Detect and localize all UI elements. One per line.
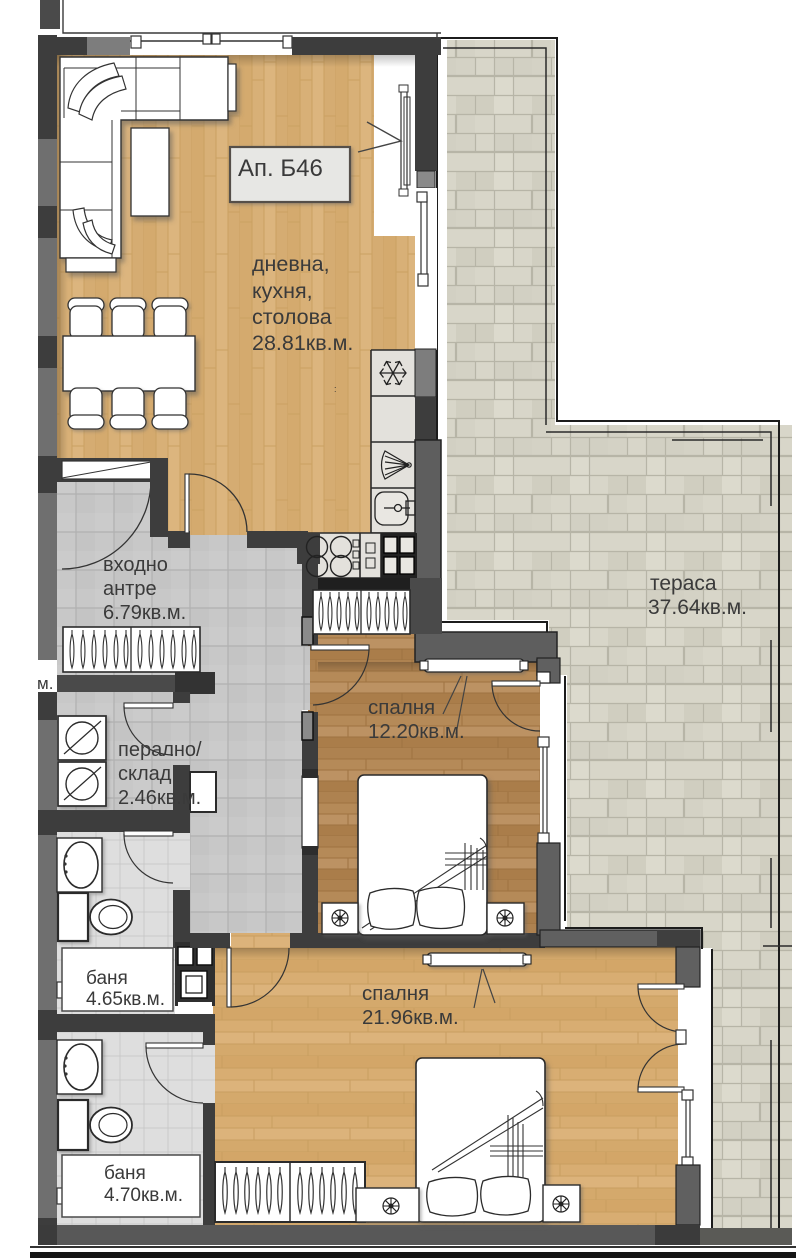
svg-text:Ап. Б46: Ап. Б46 <box>238 155 323 182</box>
svg-text:6.79кв.м.: 6.79кв.м. <box>103 602 186 624</box>
svg-text:перално/: перално/ <box>118 739 202 761</box>
svg-text:антре: антре <box>103 578 157 600</box>
svg-text:столова: столова <box>252 305 332 329</box>
svg-text:баня: баня <box>104 1163 146 1184</box>
svg-text:кухня,: кухня, <box>252 279 313 303</box>
svg-text:4.65кв.м.: 4.65кв.м. <box>86 989 165 1010</box>
svg-text::: : <box>334 384 337 394</box>
svg-text:37.64кв.м.: 37.64кв.м. <box>648 596 747 619</box>
svg-text:дневна,: дневна, <box>252 252 330 276</box>
svg-text:28.81кв.м.: 28.81кв.м. <box>252 331 353 355</box>
svg-text:баня: баня <box>86 968 128 989</box>
svg-text:входно: входно <box>103 554 168 576</box>
svg-text:12.20кв.м.: 12.20кв.м. <box>368 720 465 743</box>
svg-text:тераса: тераса <box>650 572 717 595</box>
svg-text:спалня: спалня <box>362 982 429 1005</box>
svg-text:м.: м. <box>37 674 53 693</box>
svg-text:21.96кв.м.: 21.96кв.м. <box>362 1006 459 1029</box>
svg-text:склад: склад <box>118 763 172 785</box>
svg-text:2.46кв.м.: 2.46кв.м. <box>118 787 201 809</box>
svg-text:спалня: спалня <box>368 696 435 719</box>
svg-text:4.70кв.м.: 4.70кв.м. <box>104 1185 183 1206</box>
